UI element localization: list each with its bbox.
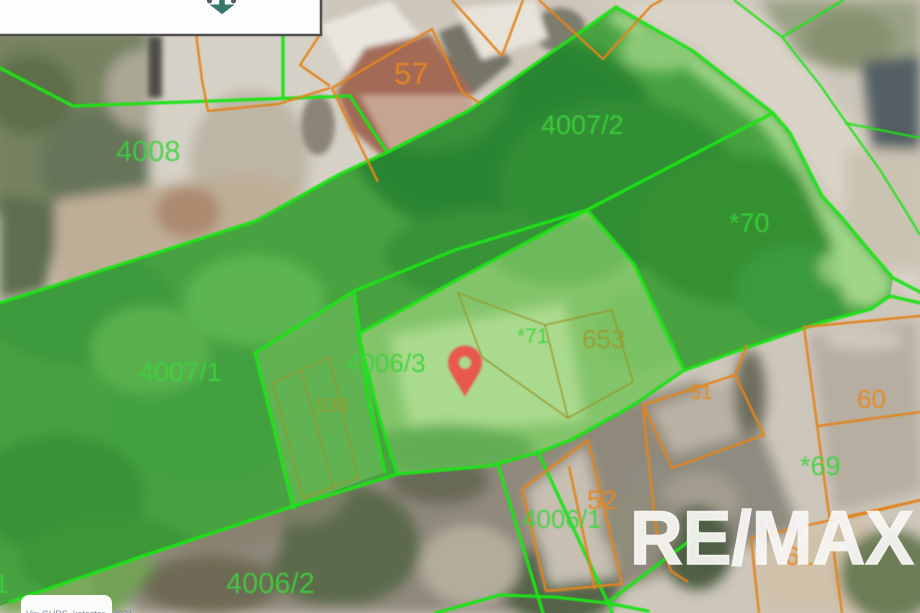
- svg-text:*69: *69: [800, 451, 841, 481]
- svg-text:*71: *71: [517, 325, 549, 348]
- svg-text:4008: 4008: [116, 136, 181, 168]
- svg-text:4006/2: 4006/2: [226, 568, 315, 600]
- svg-text:60: 60: [857, 384, 886, 414]
- svg-text:RE/MAX: RE/MAX: [630, 496, 914, 581]
- svg-text:4007/2: 4007/2: [541, 110, 624, 140]
- svg-text:51: 51: [690, 382, 712, 404]
- svg-text:536: 536: [316, 396, 348, 417]
- svg-text:Vir: GURS, kataster · 2021: Vir: GURS, kataster · 2021: [26, 609, 133, 613]
- svg-text:4007/1: 4007/1: [139, 357, 222, 387]
- svg-text:*70: *70: [729, 208, 770, 238]
- svg-text:653: 653: [582, 324, 625, 354]
- svg-text:4006/3: 4006/3: [346, 348, 426, 378]
- svg-text:57: 57: [394, 56, 428, 91]
- svg-text:1: 1: [0, 569, 9, 599]
- svg-text:52: 52: [587, 485, 617, 515]
